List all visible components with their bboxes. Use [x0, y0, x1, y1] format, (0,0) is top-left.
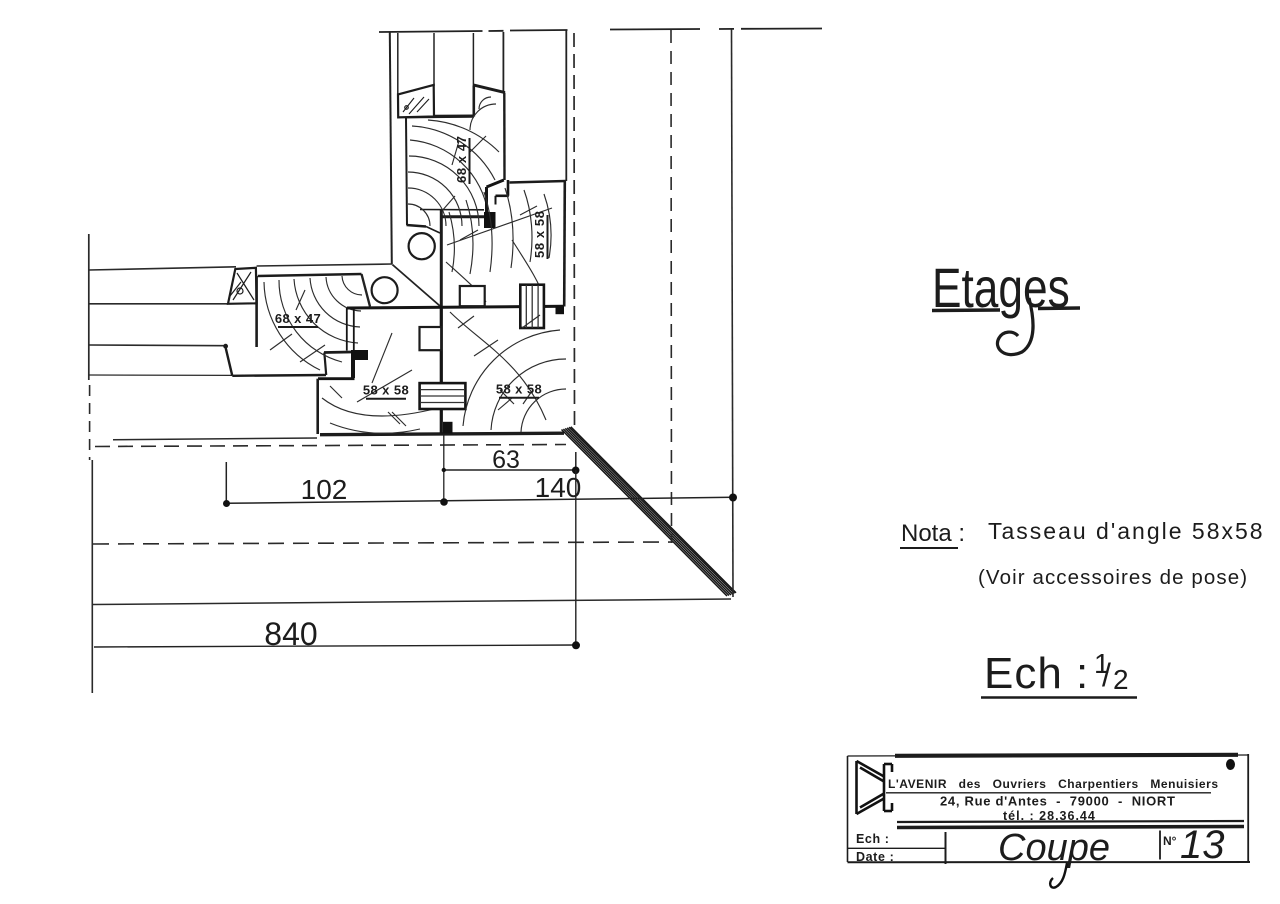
svg-text:tél. : 28.36.44: tél. : 28.36.44: [1003, 809, 1096, 823]
svg-text:Ech :: Ech :: [856, 832, 890, 846]
svg-text:58 x 58: 58 x 58: [532, 210, 547, 258]
svg-text:2: 2: [1113, 664, 1129, 695]
svg-text:Date :: Date :: [856, 850, 894, 864]
svg-text:68 x 47: 68 x 47: [275, 311, 321, 326]
svg-text:140: 140: [535, 472, 582, 503]
svg-text:13: 13: [1180, 823, 1225, 867]
svg-text:(Voir accessoires de pose): (Voir accessoires de pose): [978, 566, 1248, 589]
svg-text:Tasseau d'angle 58x58: Tasseau d'angle 58x58: [988, 518, 1265, 544]
svg-text:Coupe: Coupe: [998, 827, 1110, 869]
svg-text:102: 102: [301, 474, 348, 505]
svg-text:58 x 58: 58 x 58: [496, 382, 542, 397]
svg-text:24, Rue d'Antes - 79000 -: 24, Rue d'Antes - 79000 - NIORT: [940, 794, 1176, 809]
svg-text:63: 63: [492, 446, 520, 474]
svg-text:N°: N°: [1163, 834, 1177, 848]
svg-text:68 x 47: 68 x 47: [454, 135, 469, 183]
svg-text:Ech :: Ech :: [984, 649, 1089, 698]
svg-text:58 x 58: 58 x 58: [363, 383, 409, 398]
svg-text:840: 840: [264, 616, 317, 652]
svg-text:L'AVENIR des Ouvriers Ch: L'AVENIR des Ouvriers Charpentiers Menui…: [888, 777, 1219, 791]
svg-text:Nota :: Nota :: [901, 520, 965, 547]
svg-text:/: /: [1102, 657, 1111, 693]
